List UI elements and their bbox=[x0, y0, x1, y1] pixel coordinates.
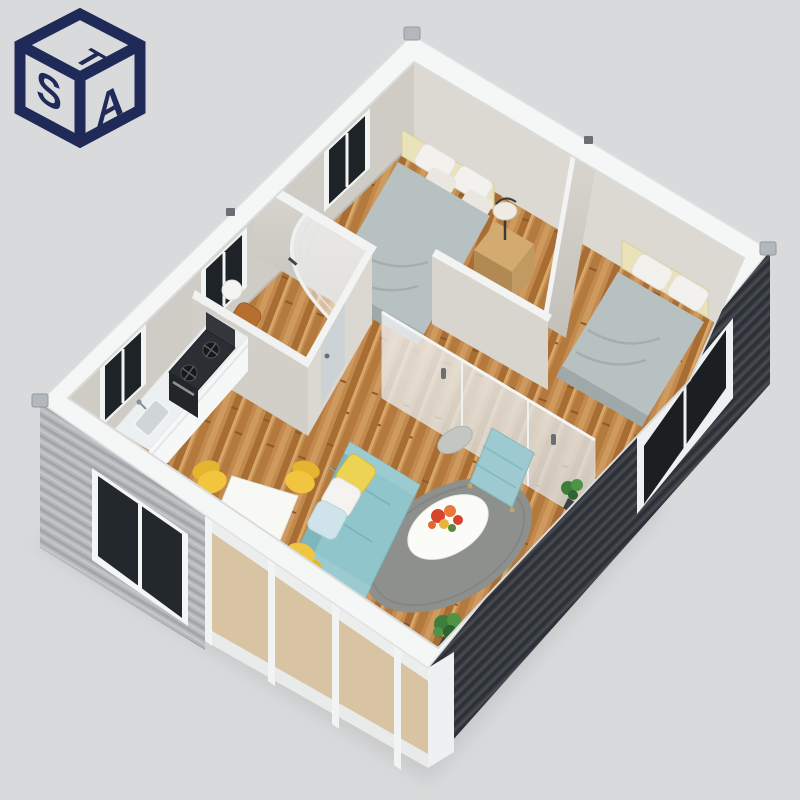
curtain-wall-mullion bbox=[268, 558, 275, 686]
chair-leg bbox=[510, 508, 515, 513]
door-handle bbox=[441, 368, 446, 379]
corner-casting bbox=[404, 27, 420, 40]
render-canvas: T S A bbox=[0, 0, 800, 800]
curtain-wall-mullion bbox=[332, 602, 339, 729]
door-handle bbox=[551, 434, 556, 445]
corner-casting bbox=[32, 394, 48, 407]
curtain-wall-mullion bbox=[205, 515, 212, 646]
house-render: T S A bbox=[0, 0, 800, 800]
corner-casting bbox=[760, 242, 776, 255]
table-lamp bbox=[493, 202, 517, 220]
curtain-wall-mullion bbox=[394, 645, 401, 770]
rim-fitting bbox=[584, 136, 593, 144]
chair-leg bbox=[468, 484, 473, 489]
door-handle bbox=[325, 354, 330, 359]
rim-fitting bbox=[226, 208, 235, 216]
corner-post bbox=[428, 652, 454, 768]
